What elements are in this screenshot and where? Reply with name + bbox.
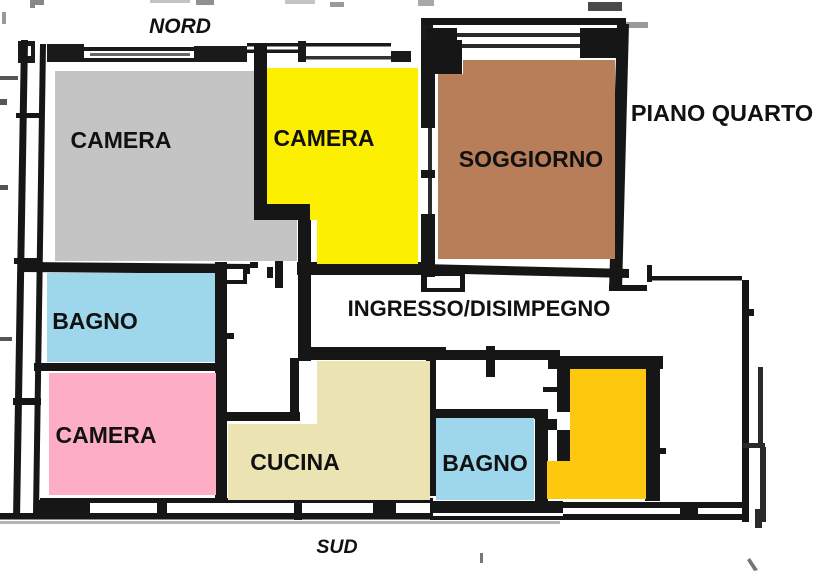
svg-text:BAGNO: BAGNO (52, 308, 138, 334)
svg-text:BAGNO: BAGNO (442, 450, 528, 476)
svg-text:NORD: NORD (149, 15, 211, 38)
svg-text:PIANO QUARTO: PIANO QUARTO (631, 100, 813, 126)
svg-text:SUD: SUD (316, 536, 357, 558)
svg-text:CAMERA: CAMERA (71, 127, 172, 153)
svg-text:SOGGIORNO: SOGGIORNO (459, 146, 603, 172)
svg-text:INGRESSO/DISIMPEGNO: INGRESSO/DISIMPEGNO (348, 296, 611, 321)
svg-text:CUCINA: CUCINA (250, 449, 339, 475)
svg-text:CAMERA: CAMERA (274, 125, 375, 151)
svg-text:CAMERA: CAMERA (56, 422, 157, 448)
